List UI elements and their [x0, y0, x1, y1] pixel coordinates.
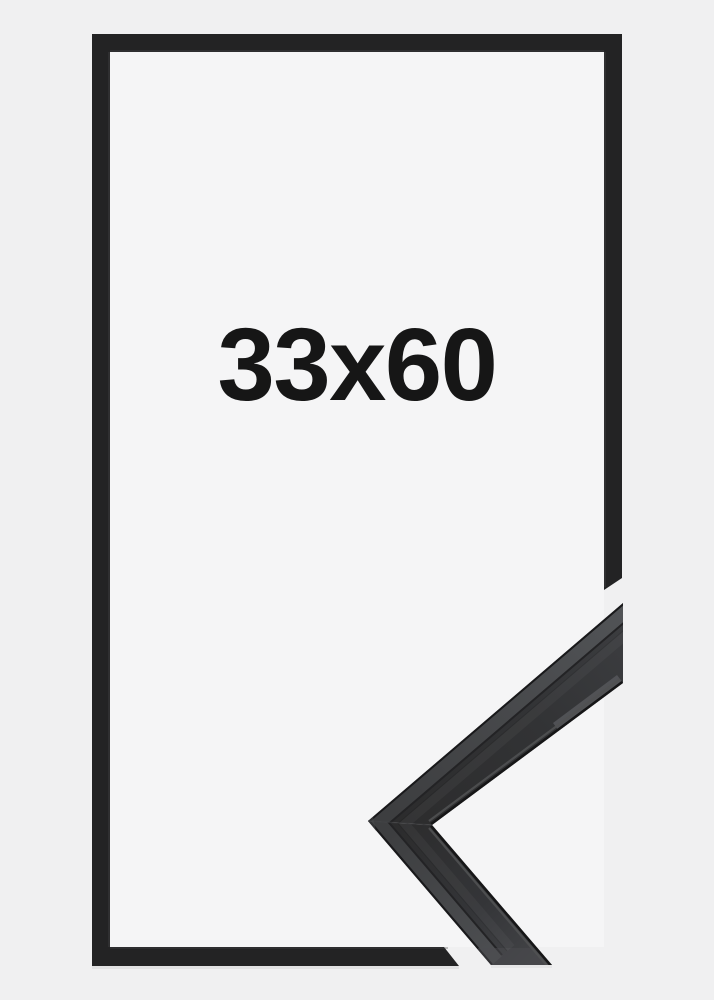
- product-image: 33x60: [0, 0, 714, 1000]
- frame-product-graphic: [0, 0, 714, 1000]
- frame-outline-right-band: [604, 34, 622, 590]
- size-label: 33x60: [0, 313, 714, 416]
- frame-interior-area: [110, 52, 604, 947]
- frame-outline-left-band: [92, 34, 110, 966]
- frame-outline-top-band: [92, 34, 622, 52]
- frame-outline-bottom-band: [92, 947, 459, 966]
